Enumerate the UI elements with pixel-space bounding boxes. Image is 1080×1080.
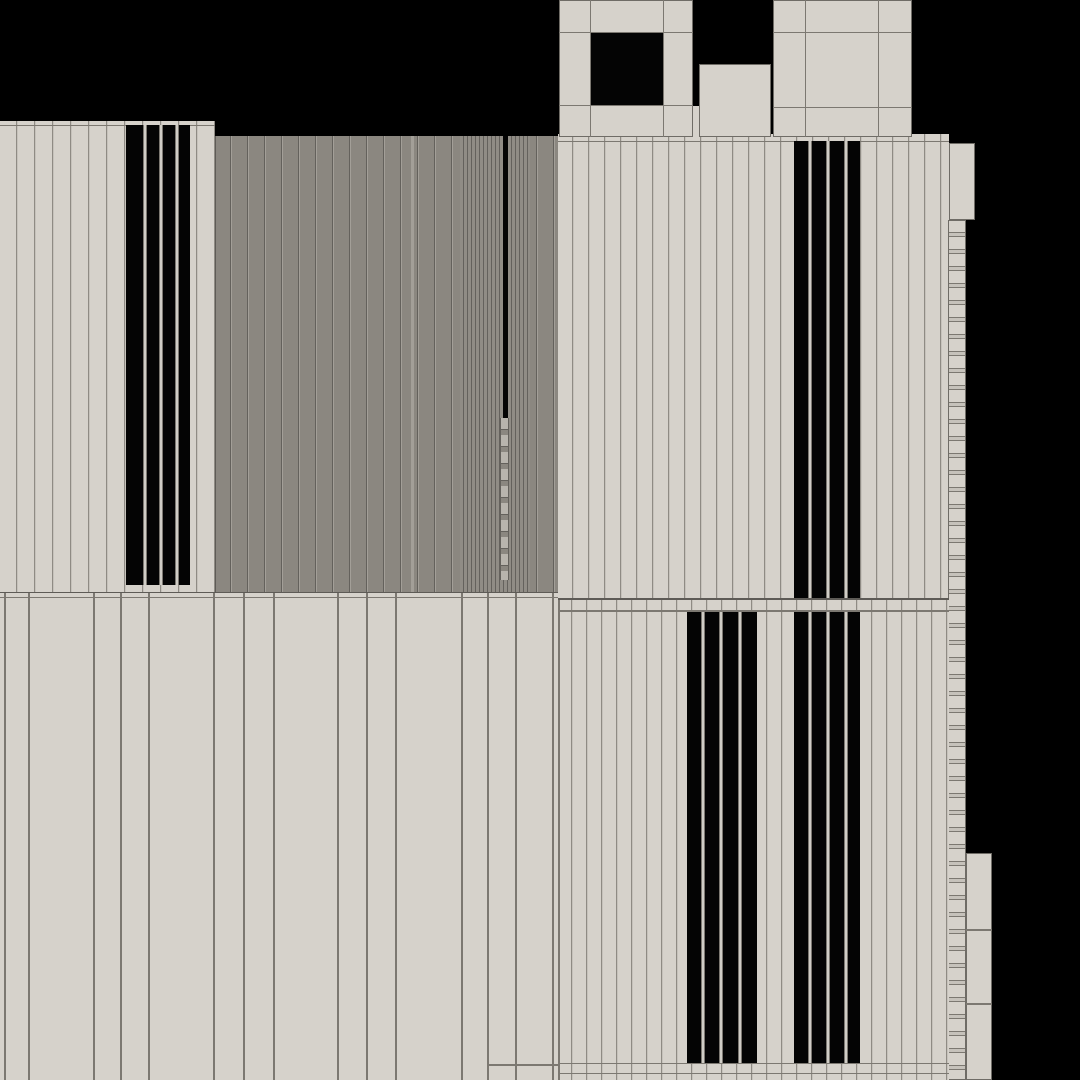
window-slats-lower-b-slat-divider-2 (844, 612, 848, 1063)
facade-upper-right (558, 134, 949, 598)
facade-upper-middle-gray-vseam-1 (411, 136, 414, 592)
roof-block-c-vseam-1 (878, 0, 879, 137)
roof-block-c-hseam-1 (773, 107, 912, 108)
window-slats-upper-right-slat-divider-0 (808, 141, 812, 598)
facade-lower-left-vseam-4 (148, 592, 150, 1080)
facade-lower-left-vseam-12 (487, 592, 489, 1080)
side-ladder-strip (948, 220, 966, 1080)
facade-lower-left-vseam-0 (4, 592, 6, 1080)
roof-block-a (559, 0, 693, 137)
window-slats-lower-b-slat-divider-0 (808, 612, 812, 1063)
window-slats-lower-a-slat-divider-0 (701, 612, 705, 1063)
side-appendix-block-hseam-1 (966, 1003, 992, 1005)
facade-lower-left-vseam-11 (461, 592, 463, 1080)
side-appendix-block-hseam-0 (966, 929, 992, 931)
window-slats-upper-right-slat-divider-1 (826, 141, 830, 598)
roof-block-c-vseam-0 (805, 0, 806, 137)
window-slats-upper-right-slat-divider-2 (844, 141, 848, 598)
facade-lower-left-vseam-7 (273, 592, 275, 1080)
facade-lower-left-vseam-5 (213, 592, 215, 1080)
facade-lower-right-hseam-3 (558, 1073, 949, 1074)
facade-lower-left-vseam-13 (515, 592, 517, 1080)
plank-bundle-middle (460, 136, 530, 592)
facade-lower-left-hseam-1 (0, 597, 558, 598)
window-slats-lower-a-slat-divider-1 (719, 612, 723, 1063)
roof-block-b (699, 64, 771, 137)
window-slats-lower-b-slat-divider-1 (826, 612, 830, 1063)
window-slats-upper-left-slat-divider-2 (175, 125, 179, 585)
facade-lower-left-vseam-1 (28, 592, 30, 1080)
window-slats-upper-left (126, 125, 190, 585)
roof-block-c-hseam-0 (773, 32, 912, 33)
facade-upper-middle-gray-vseam-0 (215, 136, 216, 592)
window-slats-upper-right (794, 141, 860, 598)
facade-lower-left-hseam-2 (487, 1064, 558, 1066)
window-slats-lower-a-slat-divider-2 (738, 612, 742, 1063)
window-slats-upper-left-slat-divider-0 (143, 125, 147, 585)
facade-lower-left-vseam-14 (552, 592, 554, 1080)
roof-block-a-opening (591, 33, 663, 105)
window-slats-lower-b (794, 612, 860, 1063)
facade-lower-left-vseam-3 (120, 592, 122, 1080)
facade-lower-left-vseam-6 (243, 592, 245, 1080)
hinge-strip (500, 418, 509, 580)
window-slats-upper-left-slat-divider-1 (159, 125, 163, 585)
window-slats-lower-a (687, 612, 757, 1063)
roof-block-a-vseam-1 (663, 0, 664, 137)
side-cap-block (949, 143, 975, 220)
facade-lower-left-vseam-2 (93, 592, 95, 1080)
facade-upper-right-hseam-0 (558, 141, 949, 142)
facade-lower-right-hseam-0 (558, 598, 949, 600)
side-appendix-block (966, 853, 992, 1080)
elevation-render (0, 0, 1080, 1080)
roof-block-a-hseam-1 (559, 105, 693, 106)
roof-block-c (773, 0, 912, 137)
facade-lower-right-hseam-2 (558, 1063, 949, 1064)
facade-lower-right-vseam-0 (558, 598, 560, 1080)
door-seam-slot (503, 136, 508, 418)
facade-lower-left (0, 592, 558, 1080)
facade-lower-left-vseam-10 (395, 592, 397, 1080)
facade-lower-left-hseam-0 (0, 592, 558, 593)
facade-lower-left-vseam-9 (366, 592, 368, 1080)
facade-lower-left-vseam-8 (337, 592, 339, 1080)
